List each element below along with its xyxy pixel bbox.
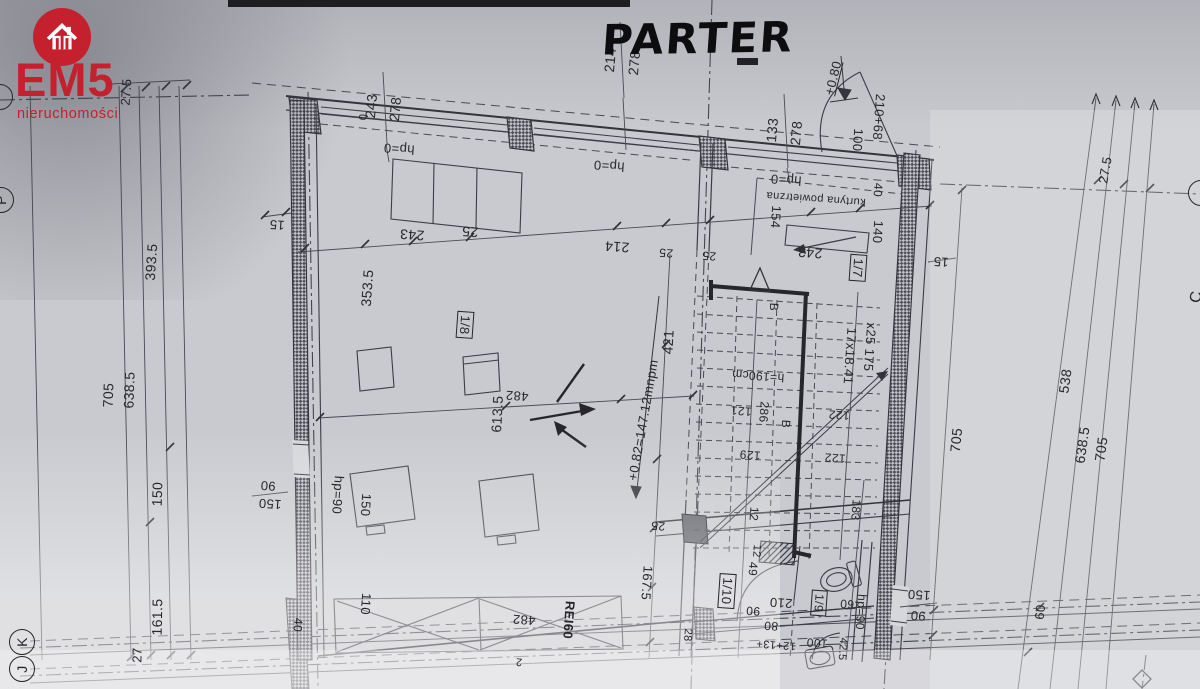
- dimension-label: 40: [292, 618, 305, 633]
- dimension-label: 12: [748, 507, 761, 522]
- dimension-label: 393.5: [143, 243, 160, 281]
- dimension-label: 42.5: [836, 637, 849, 661]
- grid-bubble-partial: [1188, 180, 1200, 206]
- note-fire-rating: REI60: [561, 601, 577, 640]
- dimension-label: 122: [828, 408, 850, 421]
- dimension-label: hp=90: [854, 594, 868, 630]
- dimension-label: 183: [849, 499, 862, 521]
- note-floor-level: +0.82=147.12mnpm: [626, 358, 660, 481]
- dimension-label: 40: [872, 183, 885, 198]
- dimension-label: 60: [1033, 604, 1048, 621]
- dimension-label: 27.5: [1096, 156, 1113, 185]
- dimension-label: 90: [910, 609, 926, 623]
- dimension-label: 122: [824, 451, 846, 464]
- dimension-label: 214: [604, 239, 629, 255]
- logo-text: EM5: [15, 52, 115, 107]
- note-entry-level: +0.80: [822, 59, 843, 96]
- dimension-label: hp=0: [770, 172, 802, 187]
- room-tag: 1/8: [456, 311, 475, 339]
- dimension-label: 100: [851, 128, 866, 152]
- dimension-label: 538: [1056, 368, 1073, 394]
- dimension-label: 161.5: [150, 598, 165, 635]
- dimension-label: 2: [515, 655, 522, 666]
- dimension-label: 90: [746, 605, 761, 618]
- dimension-label: 210+68: [871, 94, 887, 141]
- dimension-label: 353.5: [359, 269, 376, 307]
- dimension-label: 28: [681, 628, 693, 642]
- dimension-label: 705: [101, 382, 116, 407]
- dimension-label: 12+13+: [756, 637, 796, 651]
- logo: EM5 nieruchomości: [0, 0, 190, 140]
- floorplan-photo: 27.5393.5705638.5150161.5271590150243278…: [0, 0, 1200, 689]
- dimension-label: 27: [130, 647, 143, 662]
- dimension-label: 150: [150, 481, 165, 506]
- dimension-label: 121: [730, 404, 752, 417]
- dimension-label: 705: [948, 427, 964, 453]
- dimension-label: 243: [797, 245, 822, 261]
- page-title: PARTER: [591, 12, 805, 65]
- room-tag: 1/7: [849, 254, 868, 282]
- dimension-label: 482: [505, 389, 529, 404]
- section-mark-b: B: [780, 419, 793, 428]
- dimension-label: 129: [739, 448, 761, 461]
- dimension-label: 25: [461, 224, 478, 239]
- grid-bubble-c: C: [1188, 290, 1200, 305]
- dimension-label: 80: [764, 620, 779, 633]
- note-air-curtain: kurtyna powietrzna: [766, 189, 866, 207]
- dimension-label: 705: [1092, 436, 1109, 462]
- dimension-label: hp=0: [593, 158, 625, 173]
- dimension-label: 25: [659, 247, 674, 260]
- dimension-label: 286: [757, 401, 770, 423]
- dimension-label: 154: [769, 205, 784, 229]
- stairs-spec: 17x18.41: [842, 327, 859, 384]
- dimension-label: 150: [359, 493, 374, 517]
- dimension-label: 421: [660, 329, 675, 354]
- dimension-label: h=190cm: [731, 368, 784, 384]
- dimension-label: 15: [269, 218, 285, 232]
- dimension-label: hp=0: [383, 141, 415, 156]
- dimension-label: 12: [750, 544, 762, 558]
- dimension-label: 638.5: [121, 371, 136, 409]
- dimension-label: 278: [788, 120, 804, 146]
- grid-bubble-p: P: [0, 187, 14, 213]
- dimension-label: 243: [399, 227, 424, 243]
- dimension-label: 150: [258, 497, 282, 512]
- dimension-label: 278: [387, 96, 403, 122]
- dimension-label: 60: [840, 598, 855, 611]
- room-tag: 1/10: [717, 573, 736, 609]
- dimension-label: 25: [651, 520, 666, 533]
- dimension-label: 133: [764, 117, 780, 143]
- dimension-label: hp=90: [330, 475, 346, 514]
- section-mark-b: B: [768, 302, 781, 311]
- dimension-label: 150: [907, 588, 931, 603]
- room-tag: 1/9: [810, 590, 828, 617]
- grid-bubble-k: K: [9, 629, 35, 655]
- dimension-label: 25: [702, 250, 717, 263]
- grid-bubble-j: J: [9, 656, 35, 682]
- dimension-label: 0: [358, 113, 370, 120]
- dimension-label: 100: [806, 636, 828, 649]
- dimension-label: 167.5: [639, 565, 654, 600]
- stairs-spec: x25 175: [862, 322, 878, 372]
- dimension-label: 210: [769, 596, 793, 611]
- house-icon: [44, 19, 80, 55]
- dimension-label: 49: [747, 562, 760, 577]
- logo-subtext: nieruchomości: [17, 106, 118, 122]
- dimension-label: 15: [933, 255, 949, 269]
- dimension-label: 140: [871, 220, 886, 244]
- dimension-label: 110: [359, 593, 373, 616]
- dimension-label: 613.5: [489, 395, 505, 433]
- dimension-label: 638.5: [1072, 426, 1091, 465]
- dimension-label: 90: [260, 479, 276, 493]
- dimension-label: 482: [512, 613, 536, 628]
